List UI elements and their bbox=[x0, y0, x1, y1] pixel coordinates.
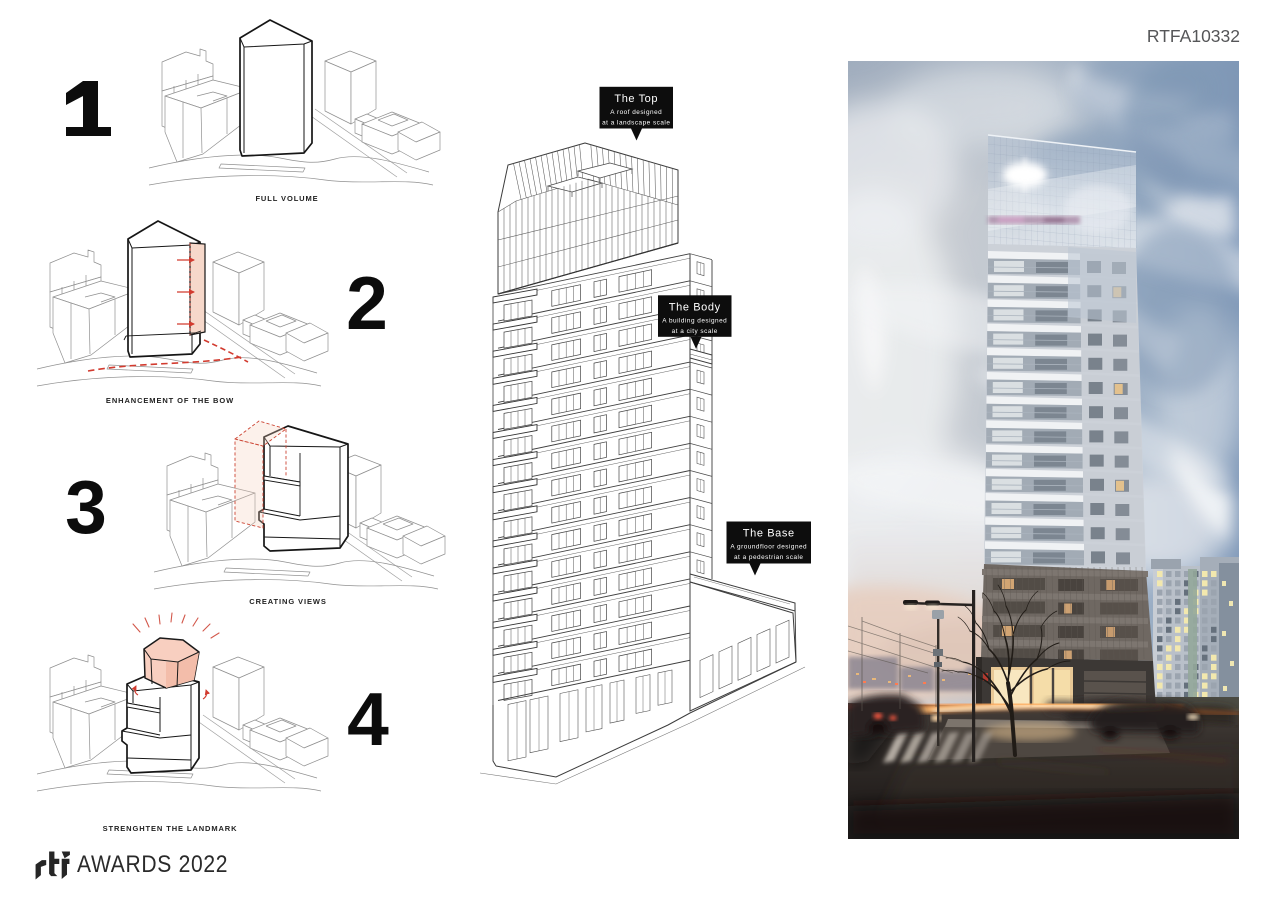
svg-text:at a city scale: at a city scale bbox=[672, 328, 718, 335]
svg-text:FULL VOLUME: FULL VOLUME bbox=[255, 194, 318, 203]
svg-text:CREATING VIEWS: CREATING VIEWS bbox=[249, 597, 326, 606]
svg-text:A roof designed: A roof designed bbox=[610, 109, 662, 116]
svg-text:The Body: The Body bbox=[669, 301, 721, 313]
svg-text:3: 3 bbox=[65, 465, 107, 549]
svg-text:ENHANCEMENT OF THE BOW: ENHANCEMENT OF THE BOW bbox=[106, 396, 234, 405]
svg-text:4: 4 bbox=[347, 677, 389, 761]
svg-text:STRENGHTEN THE LANDMARK: STRENGHTEN THE LANDMARK bbox=[103, 824, 238, 833]
svg-text:The Top: The Top bbox=[614, 93, 658, 105]
svg-text:2: 2 bbox=[346, 261, 388, 345]
svg-text:A groundfloor designed: A groundfloor designed bbox=[730, 544, 807, 551]
svg-text:at a pedestrian scale: at a pedestrian scale bbox=[734, 554, 803, 561]
svg-text:at a landscape scale: at a landscape scale bbox=[602, 119, 670, 126]
svg-text:The Base: The Base bbox=[743, 528, 795, 540]
svg-text:A building designed: A building designed bbox=[662, 317, 727, 324]
